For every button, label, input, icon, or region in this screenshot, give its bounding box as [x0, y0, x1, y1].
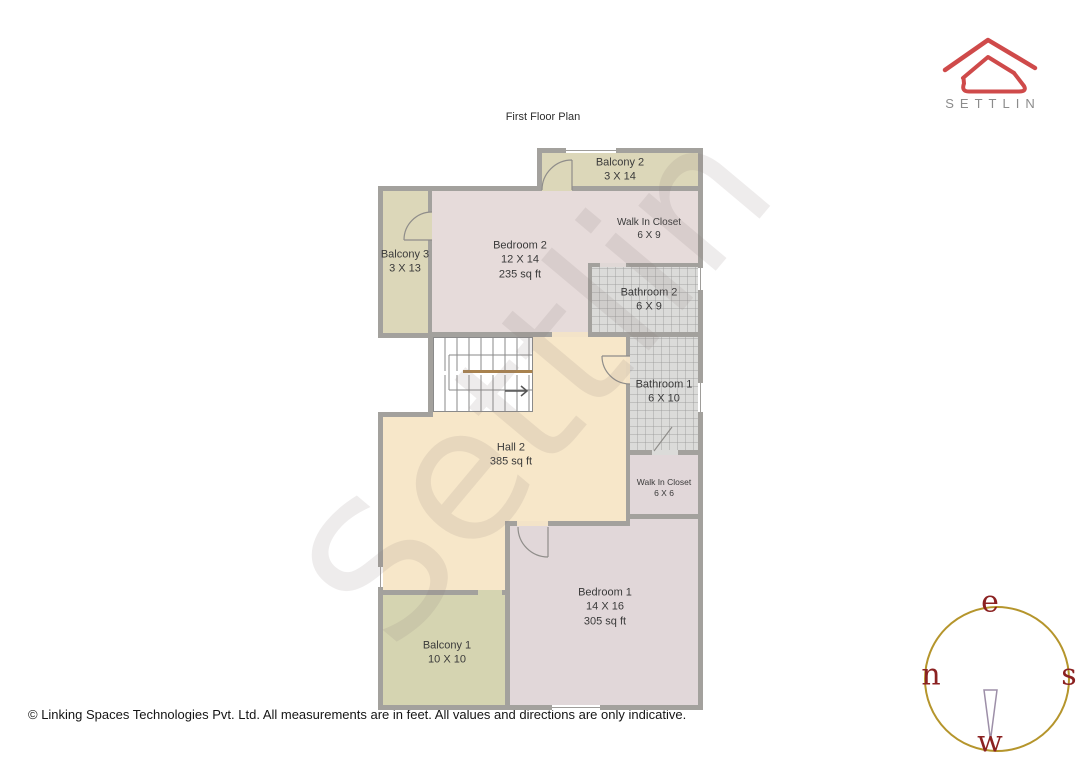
brand-logo: SETTLIN	[925, 28, 1055, 111]
doorway-floor	[517, 521, 548, 526]
room-bedroom-1-label: Bedroom 114 X 16305 sq ft	[578, 586, 632, 629]
window-marker	[378, 567, 383, 587]
doorway-floor	[428, 212, 432, 240]
wall-segment	[428, 191, 432, 212]
wall-segment	[378, 590, 478, 595]
room-balcony-3-label: Balcony 33 X 13	[381, 248, 429, 277]
room-balcony-1-label: Balcony 110 X 10	[423, 639, 471, 668]
wall-segment	[428, 333, 433, 417]
wall-segment	[378, 412, 433, 417]
wall-segment	[505, 521, 510, 595]
compass-label-right: s	[1061, 658, 1076, 693]
wall-segment	[588, 332, 703, 337]
window-marker	[698, 383, 703, 412]
house-roof-icon	[940, 28, 1040, 94]
wall-segment	[548, 521, 630, 526]
room-walk-in-closet-2-label: Walk In Closet6 X 9	[617, 216, 681, 242]
brand-name: SETTLIN	[925, 96, 1055, 111]
doorway-floor	[478, 590, 502, 595]
window-marker	[698, 268, 703, 290]
doorway-floor	[652, 450, 678, 455]
doorway-floor	[600, 263, 626, 267]
window-marker	[566, 148, 616, 153]
wall-segment	[537, 148, 542, 191]
room-walk-in-closet-1-label: Walk In Closet6 X 6	[637, 477, 691, 499]
compass-label-top: e	[981, 585, 999, 620]
wall-segment	[428, 332, 552, 337]
compass-rose: e n s w	[905, 580, 1080, 764]
floor-plan-page: First Floor Plan SETTLIN	[0, 0, 1080, 764]
doorway-floor	[626, 356, 630, 384]
room-hall-2-area	[383, 521, 505, 590]
wall-segment	[505, 590, 510, 710]
compass-label-bottom: w	[977, 725, 1003, 760]
wall-segment	[627, 514, 703, 519]
wall-segment	[537, 148, 703, 153]
compass-label-left: n	[921, 658, 940, 693]
wall-segment	[378, 333, 433, 338]
room-bedroom-2-label: Bedroom 212 X 14235 sq ft	[493, 239, 547, 282]
wall-segment	[626, 337, 630, 356]
wall-segment	[378, 412, 383, 710]
wall-segment	[378, 186, 542, 191]
doorway-floor	[542, 186, 572, 191]
window-marker	[552, 705, 600, 710]
room-balcony-2-label: Balcony 23 X 14	[596, 156, 644, 185]
doorway-floor	[552, 332, 588, 337]
wall-segment	[698, 148, 703, 710]
room-bathroom-1-label: Bathroom 16 X 10	[636, 378, 693, 407]
room-bathroom-2-label: Bathroom 26 X 9	[621, 286, 678, 315]
wall-segment	[626, 263, 703, 267]
wall-segment	[378, 705, 703, 710]
wall-segment	[572, 186, 703, 191]
floor-plan: Balcony 23 X 14 Walk In Closet6 X 9 Bedr…	[378, 148, 703, 710]
page-title: First Floor Plan	[506, 111, 581, 123]
wall-segment	[626, 450, 652, 455]
wall-segment	[588, 263, 600, 267]
wall-segment	[678, 450, 703, 455]
staircase-area	[433, 337, 533, 412]
wall-segment	[626, 384, 630, 526]
room-hall-2-area	[383, 417, 433, 521]
room-hall-2-label: Hall 2385 sq ft	[490, 441, 532, 470]
wall-segment	[588, 263, 592, 337]
